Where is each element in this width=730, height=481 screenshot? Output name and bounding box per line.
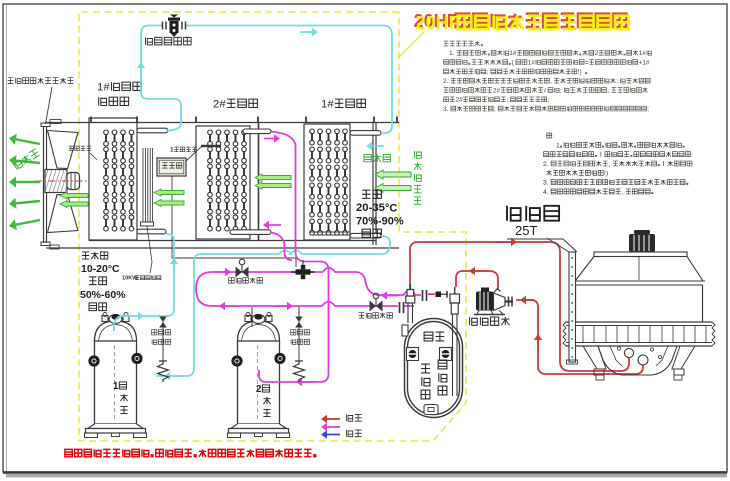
svg-text:;: ; — [616, 78, 618, 85]
svg-text:;: ; — [647, 106, 649, 113]
svg-text:=: = — [585, 59, 589, 66]
svg-text:1: 1 — [113, 381, 119, 392]
svg-text:;: ; — [487, 69, 489, 76]
svg-text:70%-90%: 70%-90% — [356, 216, 404, 228]
svg-text:4.: 4. — [543, 189, 549, 196]
svg-text:2: 2 — [256, 384, 261, 395]
svg-text:,: , — [550, 78, 552, 85]
svg-text:3.: 3. — [443, 106, 449, 113]
svg-text:2#: 2# — [493, 87, 501, 94]
svg-text:;: ; — [494, 106, 496, 113]
svg-text:°C: °C — [385, 203, 397, 215]
svg-text:1#: 1# — [321, 98, 334, 110]
svg-text:1: 1 — [556, 142, 560, 149]
svg-text::: : — [691, 152, 693, 159]
svg-text:20HP: 20HP — [416, 13, 461, 33]
svg-text:3.: 3. — [543, 180, 549, 187]
svg-text:2.: 2. — [443, 78, 449, 85]
svg-text:,: , — [609, 161, 611, 168]
svg-text:1#: 1# — [97, 81, 110, 93]
svg-text::: : — [552, 133, 554, 140]
svg-text:1#: 1# — [639, 50, 647, 57]
svg-text:;: ; — [560, 87, 562, 94]
svg-text:25T: 25T — [515, 223, 537, 238]
svg-text:,: , — [621, 189, 623, 196]
svg-text:1#: 1# — [509, 50, 517, 57]
svg-text:2: 2 — [595, 50, 599, 57]
svg-text:!): !) — [604, 170, 608, 177]
svg-text:2.: 2. — [543, 161, 549, 168]
svg-text:+1#: +1# — [639, 59, 650, 66]
svg-text:1.: 1. — [449, 50, 455, 57]
svg-text:20-35: 20-35 — [356, 202, 385, 214]
svg-text:1#: 1# — [528, 59, 536, 66]
svg-text:50%-60%: 50%-60% — [80, 289, 126, 301]
svg-text:2#: 2# — [213, 98, 226, 110]
svg-text:2#: 2# — [456, 97, 464, 104]
svg-text:/: / — [544, 87, 546, 94]
svg-text:;: ; — [548, 97, 550, 104]
svg-text:10-20°C: 10-20°C — [81, 263, 120, 275]
svg-text:10KW: 10KW — [122, 276, 138, 282]
svg-text:1: 1 — [170, 147, 174, 154]
svg-text:;: ; — [506, 97, 508, 104]
svg-text:,: , — [607, 87, 609, 94]
svg-text:!): !) — [578, 69, 582, 76]
